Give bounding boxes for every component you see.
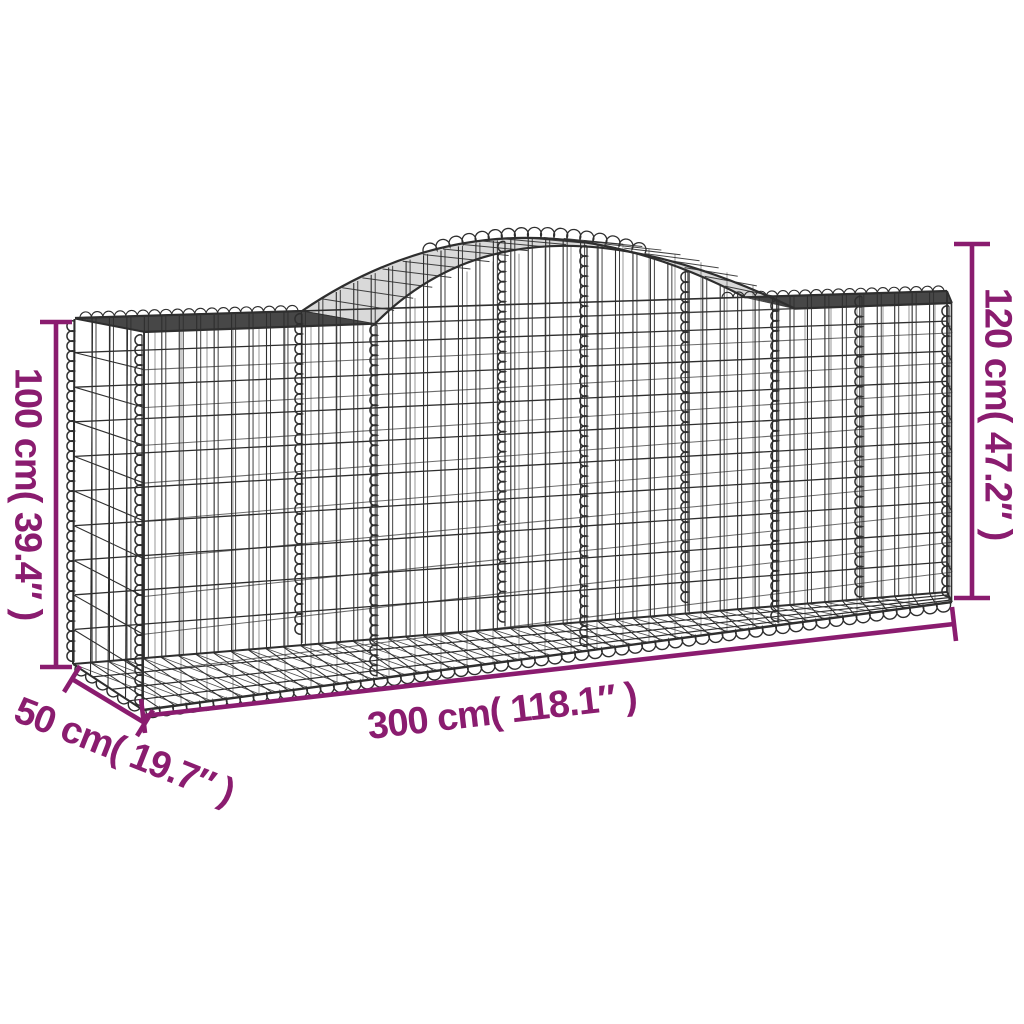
gabion-basket-wireframe xyxy=(67,227,952,717)
diagram-stage: 100 cm( 39.4″ ) 120 cm( 47.2″ ) 300 cm( … xyxy=(0,0,1024,1024)
diagram-canvas xyxy=(0,0,1024,1024)
height-left-label: 100 cm( 39.4″ ) xyxy=(6,368,49,620)
height-right-label: 120 cm( 47.2″ ) xyxy=(976,288,1019,540)
